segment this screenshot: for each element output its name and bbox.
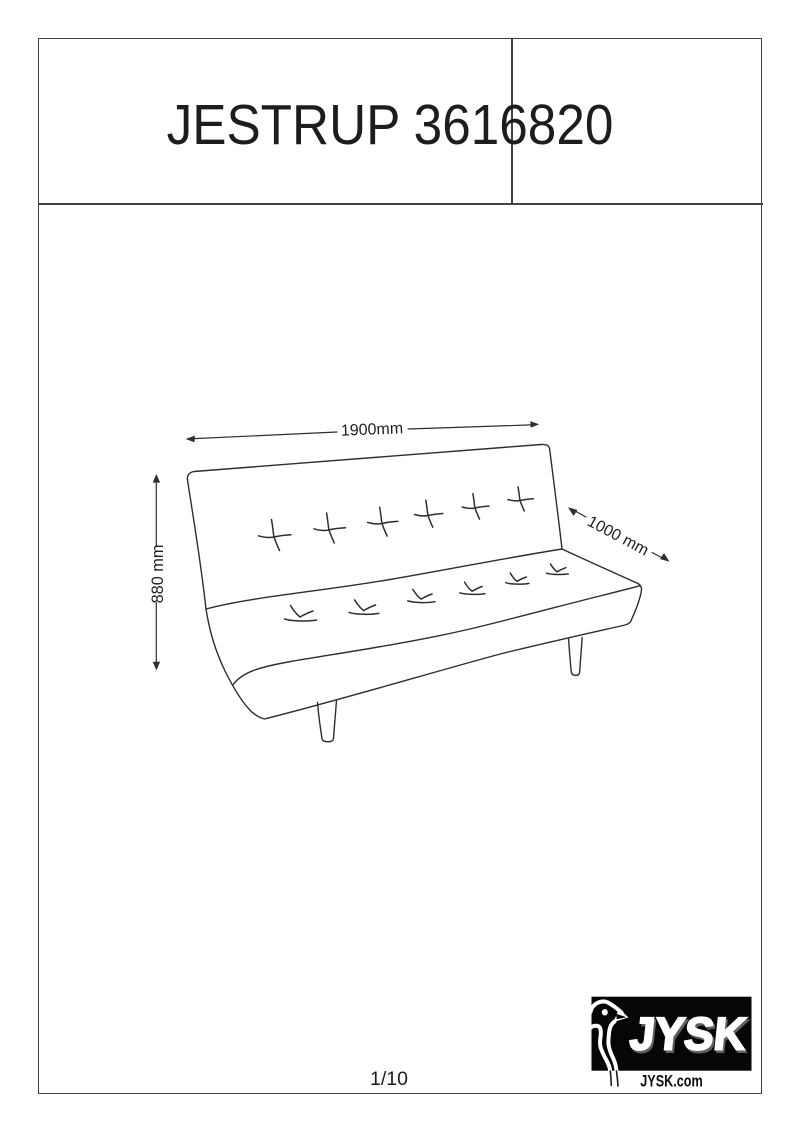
svg-text:JYSK.com: JYSK.com: [640, 1073, 703, 1091]
svg-text:1900mm: 1900mm: [341, 420, 404, 439]
svg-text:JYSK: JYSK: [627, 1008, 748, 1060]
svg-text:1000 mm: 1000 mm: [584, 513, 651, 559]
svg-text:880 mm: 880 mm: [149, 545, 167, 604]
